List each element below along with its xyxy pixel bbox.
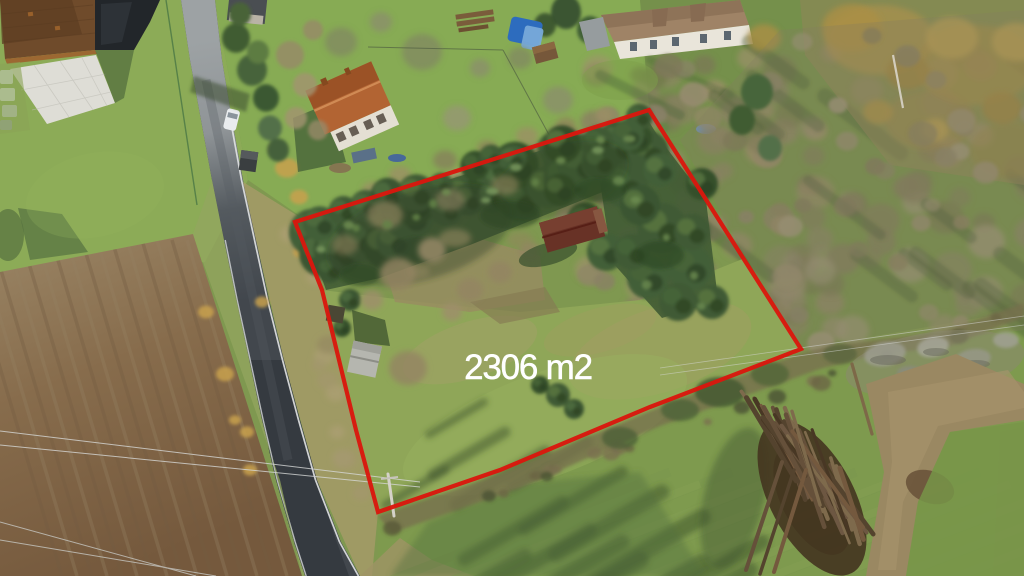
svg-text:2306 m2: 2306 m2 <box>464 348 592 387</box>
